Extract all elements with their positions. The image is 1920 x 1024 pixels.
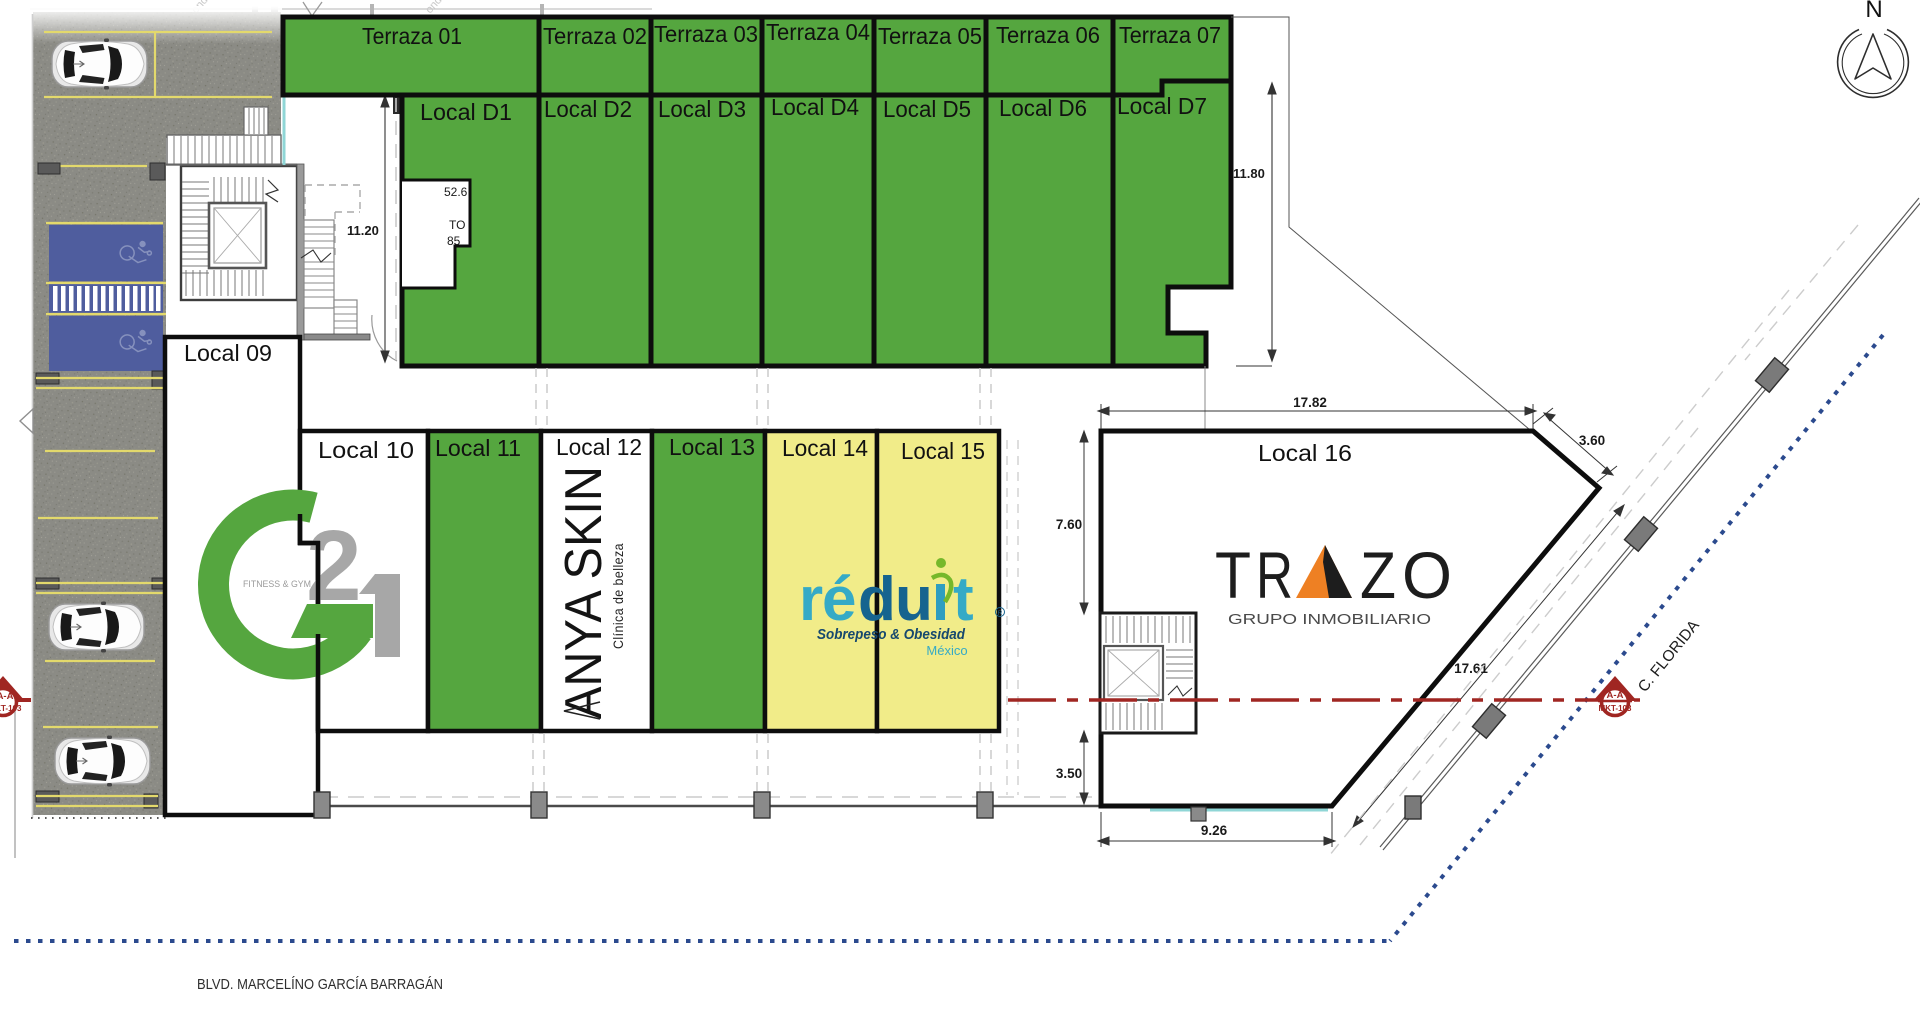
svg-text:Local 09: Local 09 [184, 340, 272, 366]
svg-text:é: é [822, 565, 856, 634]
svg-text:México: México [926, 643, 967, 658]
svg-text:Clínica de belleza: Clínica de belleza [610, 543, 626, 649]
svg-text:Terraza 06: Terraza 06 [996, 22, 1100, 48]
svg-text:7.60: 7.60 [1056, 517, 1082, 532]
svg-text:A-A: A-A [1607, 690, 1624, 701]
svg-text:9.26: 9.26 [1201, 823, 1228, 838]
svg-text:r: r [799, 565, 823, 634]
svg-text:11.20: 11.20 [347, 223, 379, 238]
svg-text:A-A: A-A [0, 691, 14, 702]
svg-text:Local D4: Local D4 [771, 94, 859, 120]
svg-text:d: d [858, 565, 896, 634]
svg-text:R: R [1256, 538, 1293, 612]
svg-text:Terraza 01: Terraza 01 [362, 23, 462, 49]
svg-text:Z: Z [1360, 538, 1396, 612]
svg-text:Terraza 02: Terraza 02 [543, 23, 647, 49]
svg-text:MKT-103: MKT-103 [1599, 704, 1632, 713]
svg-text:ANYA SKIN: ANYA SKIN [555, 466, 613, 719]
svg-text:Local D3: Local D3 [658, 96, 746, 122]
svg-text:Local 12: Local 12 [556, 434, 642, 460]
svg-text:Local D1: Local D1 [420, 99, 512, 125]
svg-text:Terraza 03: Terraza 03 [654, 21, 758, 47]
svg-text:Terraza 07: Terraza 07 [1119, 22, 1221, 48]
svg-text:u: u [895, 565, 933, 634]
svg-text:Local D2: Local D2 [544, 96, 632, 122]
svg-text:11.80: 11.80 [1233, 166, 1265, 181]
svg-text:Local 16: Local 16 [1258, 440, 1352, 466]
svg-text:O: O [1402, 538, 1452, 612]
svg-text:Local 13: Local 13 [669, 434, 755, 460]
svg-text:Local 14: Local 14 [782, 435, 868, 461]
svg-text:FITNESS & GYM: FITNESS & GYM [243, 579, 311, 590]
svg-text:N: N [1865, 0, 1882, 23]
svg-text:t: t [953, 565, 974, 634]
svg-text:17.82: 17.82 [1293, 395, 1327, 410]
svg-text:Local 11: Local 11 [435, 435, 521, 461]
svg-text:85: 85 [447, 234, 461, 248]
svg-text:Local 15: Local 15 [901, 438, 985, 464]
svg-text:GRUPO INMOBILIARIO: GRUPO INMOBILIARIO [1228, 611, 1431, 628]
svg-text:17.61: 17.61 [1454, 661, 1488, 676]
svg-text:BLVD. MARCELÍNO GARCÍA BARRAGÁ: BLVD. MARCELÍNO GARCÍA BARRAGÁN [197, 976, 443, 993]
svg-text:3.60: 3.60 [1579, 433, 1605, 448]
svg-text:Terraza 04: Terraza 04 [766, 19, 870, 45]
svg-text:Terraza 05: Terraza 05 [878, 23, 982, 49]
svg-text:Local D5: Local D5 [883, 96, 971, 122]
svg-text:3.50: 3.50 [1056, 766, 1082, 781]
svg-text:Local D6: Local D6 [999, 95, 1087, 121]
svg-text:T: T [1215, 538, 1251, 612]
svg-text:TO: TO [449, 218, 465, 232]
svg-text:Sobrepeso & Obesidad: Sobrepeso & Obesidad [817, 626, 966, 643]
svg-text:Local 10: Local 10 [318, 437, 414, 463]
svg-text:52.6: 52.6 [444, 185, 468, 199]
svg-text:Local D7: Local D7 [1117, 93, 1207, 119]
svg-text:R: R [998, 610, 1003, 617]
svg-text:MKT-103: MKT-103 [0, 704, 22, 713]
